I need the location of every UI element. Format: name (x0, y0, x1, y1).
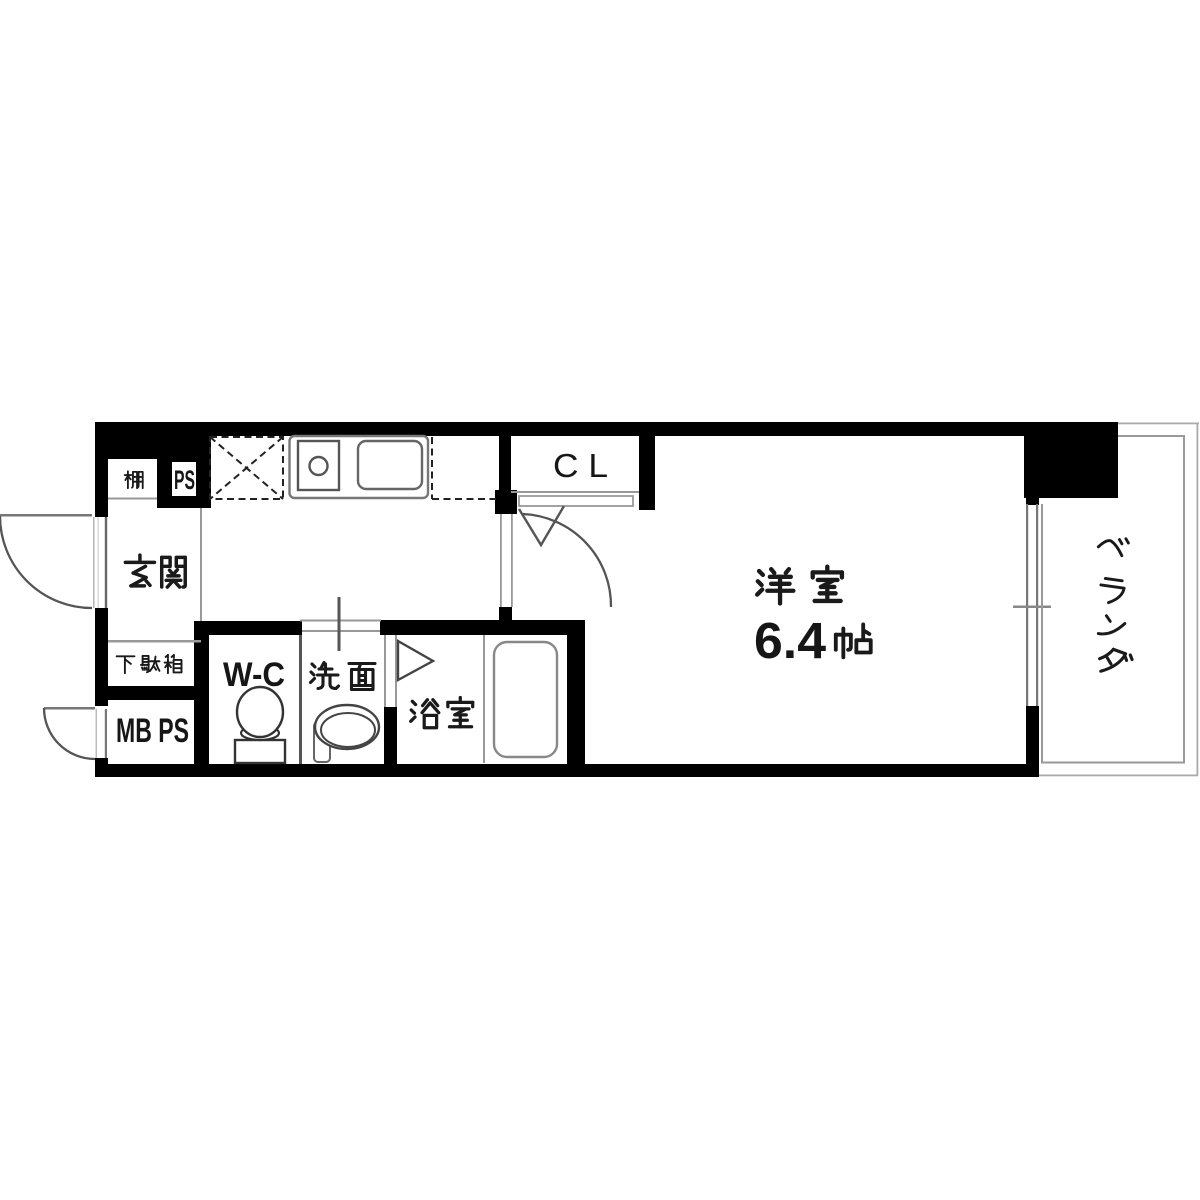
svg-text:PS: PS (174, 465, 195, 495)
svg-text:MB PS: MB PS (116, 712, 189, 750)
svg-text:6.4: 6.4 (754, 612, 827, 669)
svg-text:C L: C L (553, 447, 608, 484)
